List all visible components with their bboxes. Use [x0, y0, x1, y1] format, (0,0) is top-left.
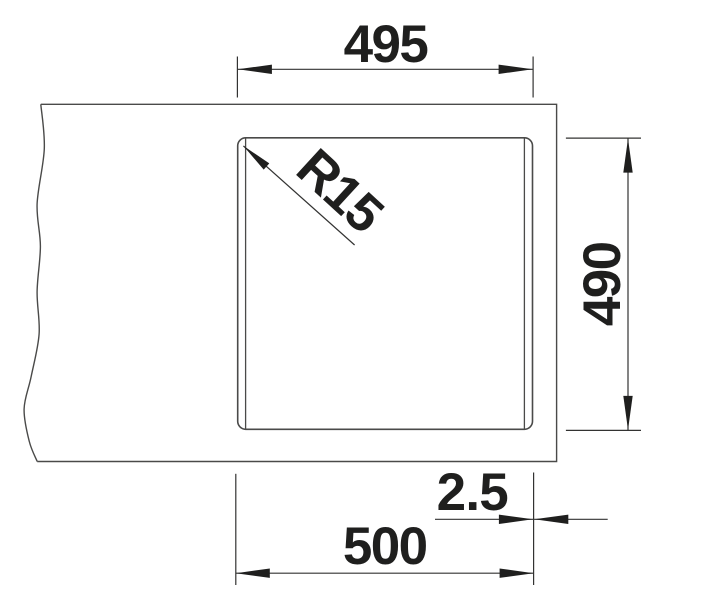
svg-text:495: 495 [344, 15, 428, 74]
svg-text:500: 500 [343, 517, 427, 576]
svg-text:2.5: 2.5 [437, 463, 508, 522]
svg-text:490: 490 [573, 242, 632, 326]
svg-text:R15: R15 [285, 138, 393, 244]
